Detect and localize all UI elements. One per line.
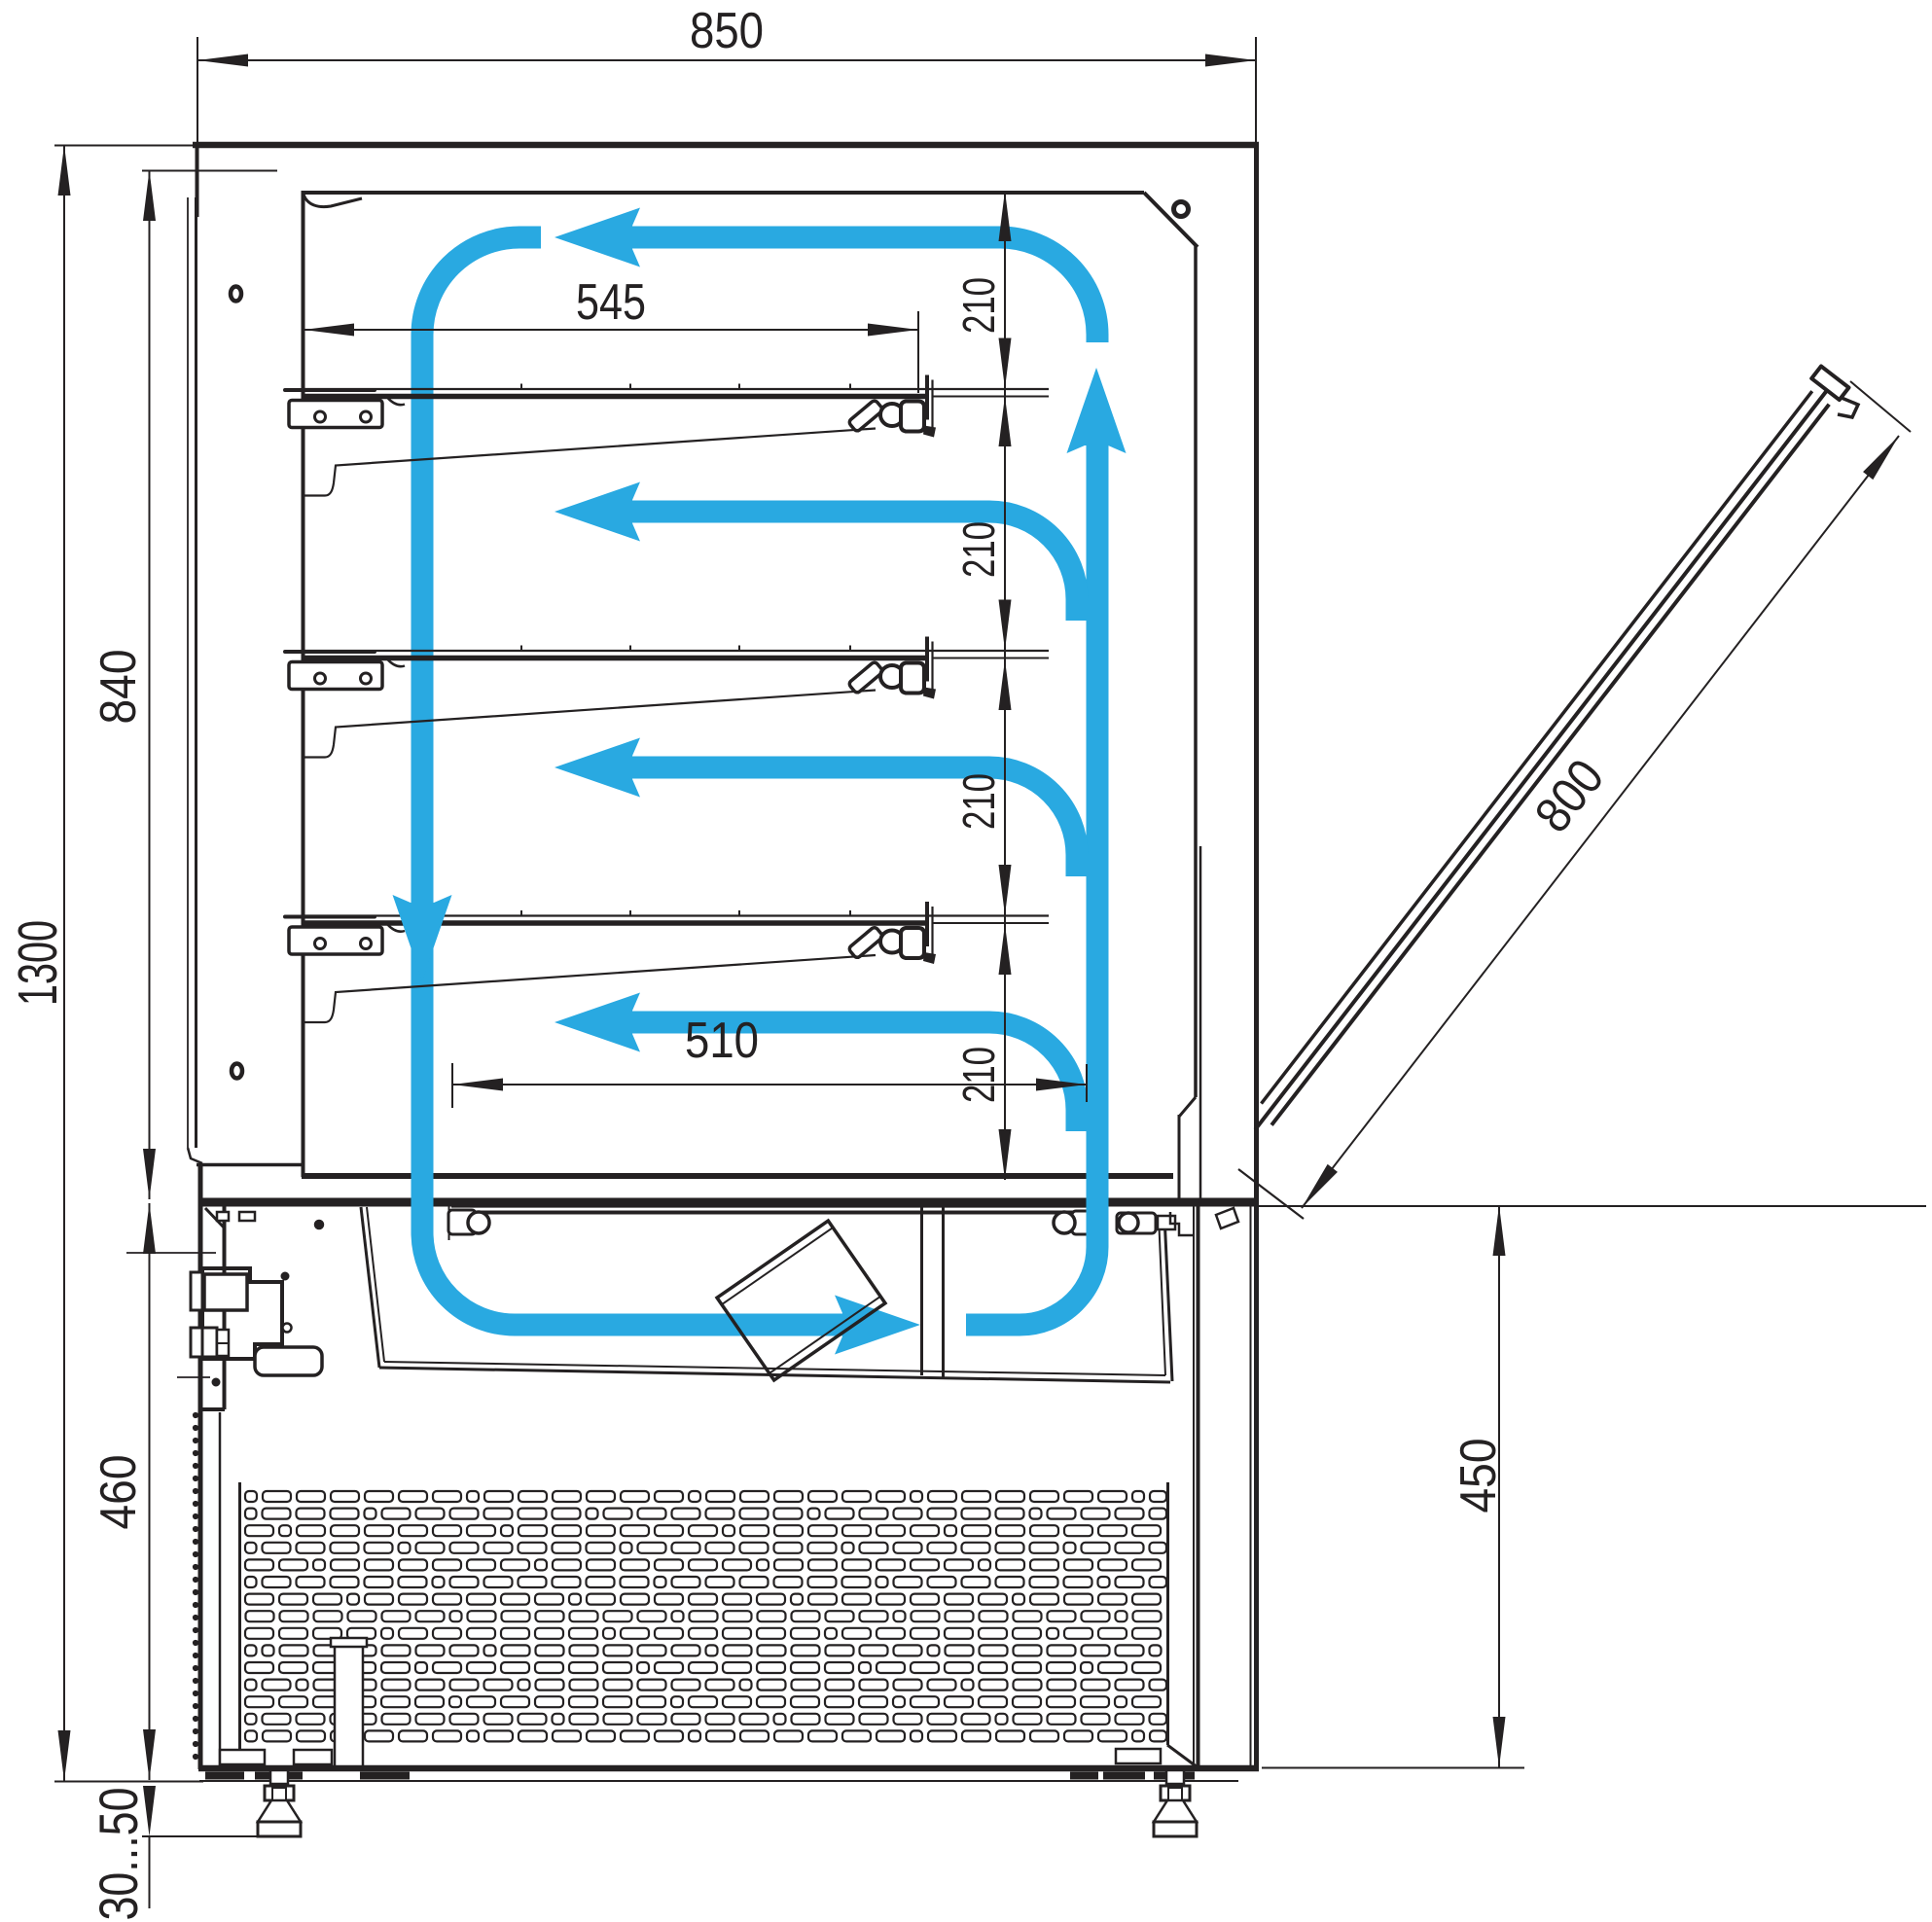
svg-text:450: 450 (1450, 1439, 1507, 1513)
svg-text:210: 210 (953, 277, 1004, 334)
svg-text:545: 545 (576, 274, 646, 331)
svg-text:210: 210 (953, 521, 1004, 578)
svg-text:210: 210 (953, 1047, 1004, 1103)
svg-text:840: 840 (90, 650, 147, 725)
svg-text:460: 460 (90, 1455, 147, 1530)
svg-text:850: 850 (690, 3, 764, 59)
svg-text:1300: 1300 (7, 920, 69, 1006)
svg-text:30...50: 30...50 (88, 1788, 149, 1921)
svg-text:210: 210 (953, 773, 1004, 830)
svg-text:510: 510 (685, 1013, 759, 1069)
